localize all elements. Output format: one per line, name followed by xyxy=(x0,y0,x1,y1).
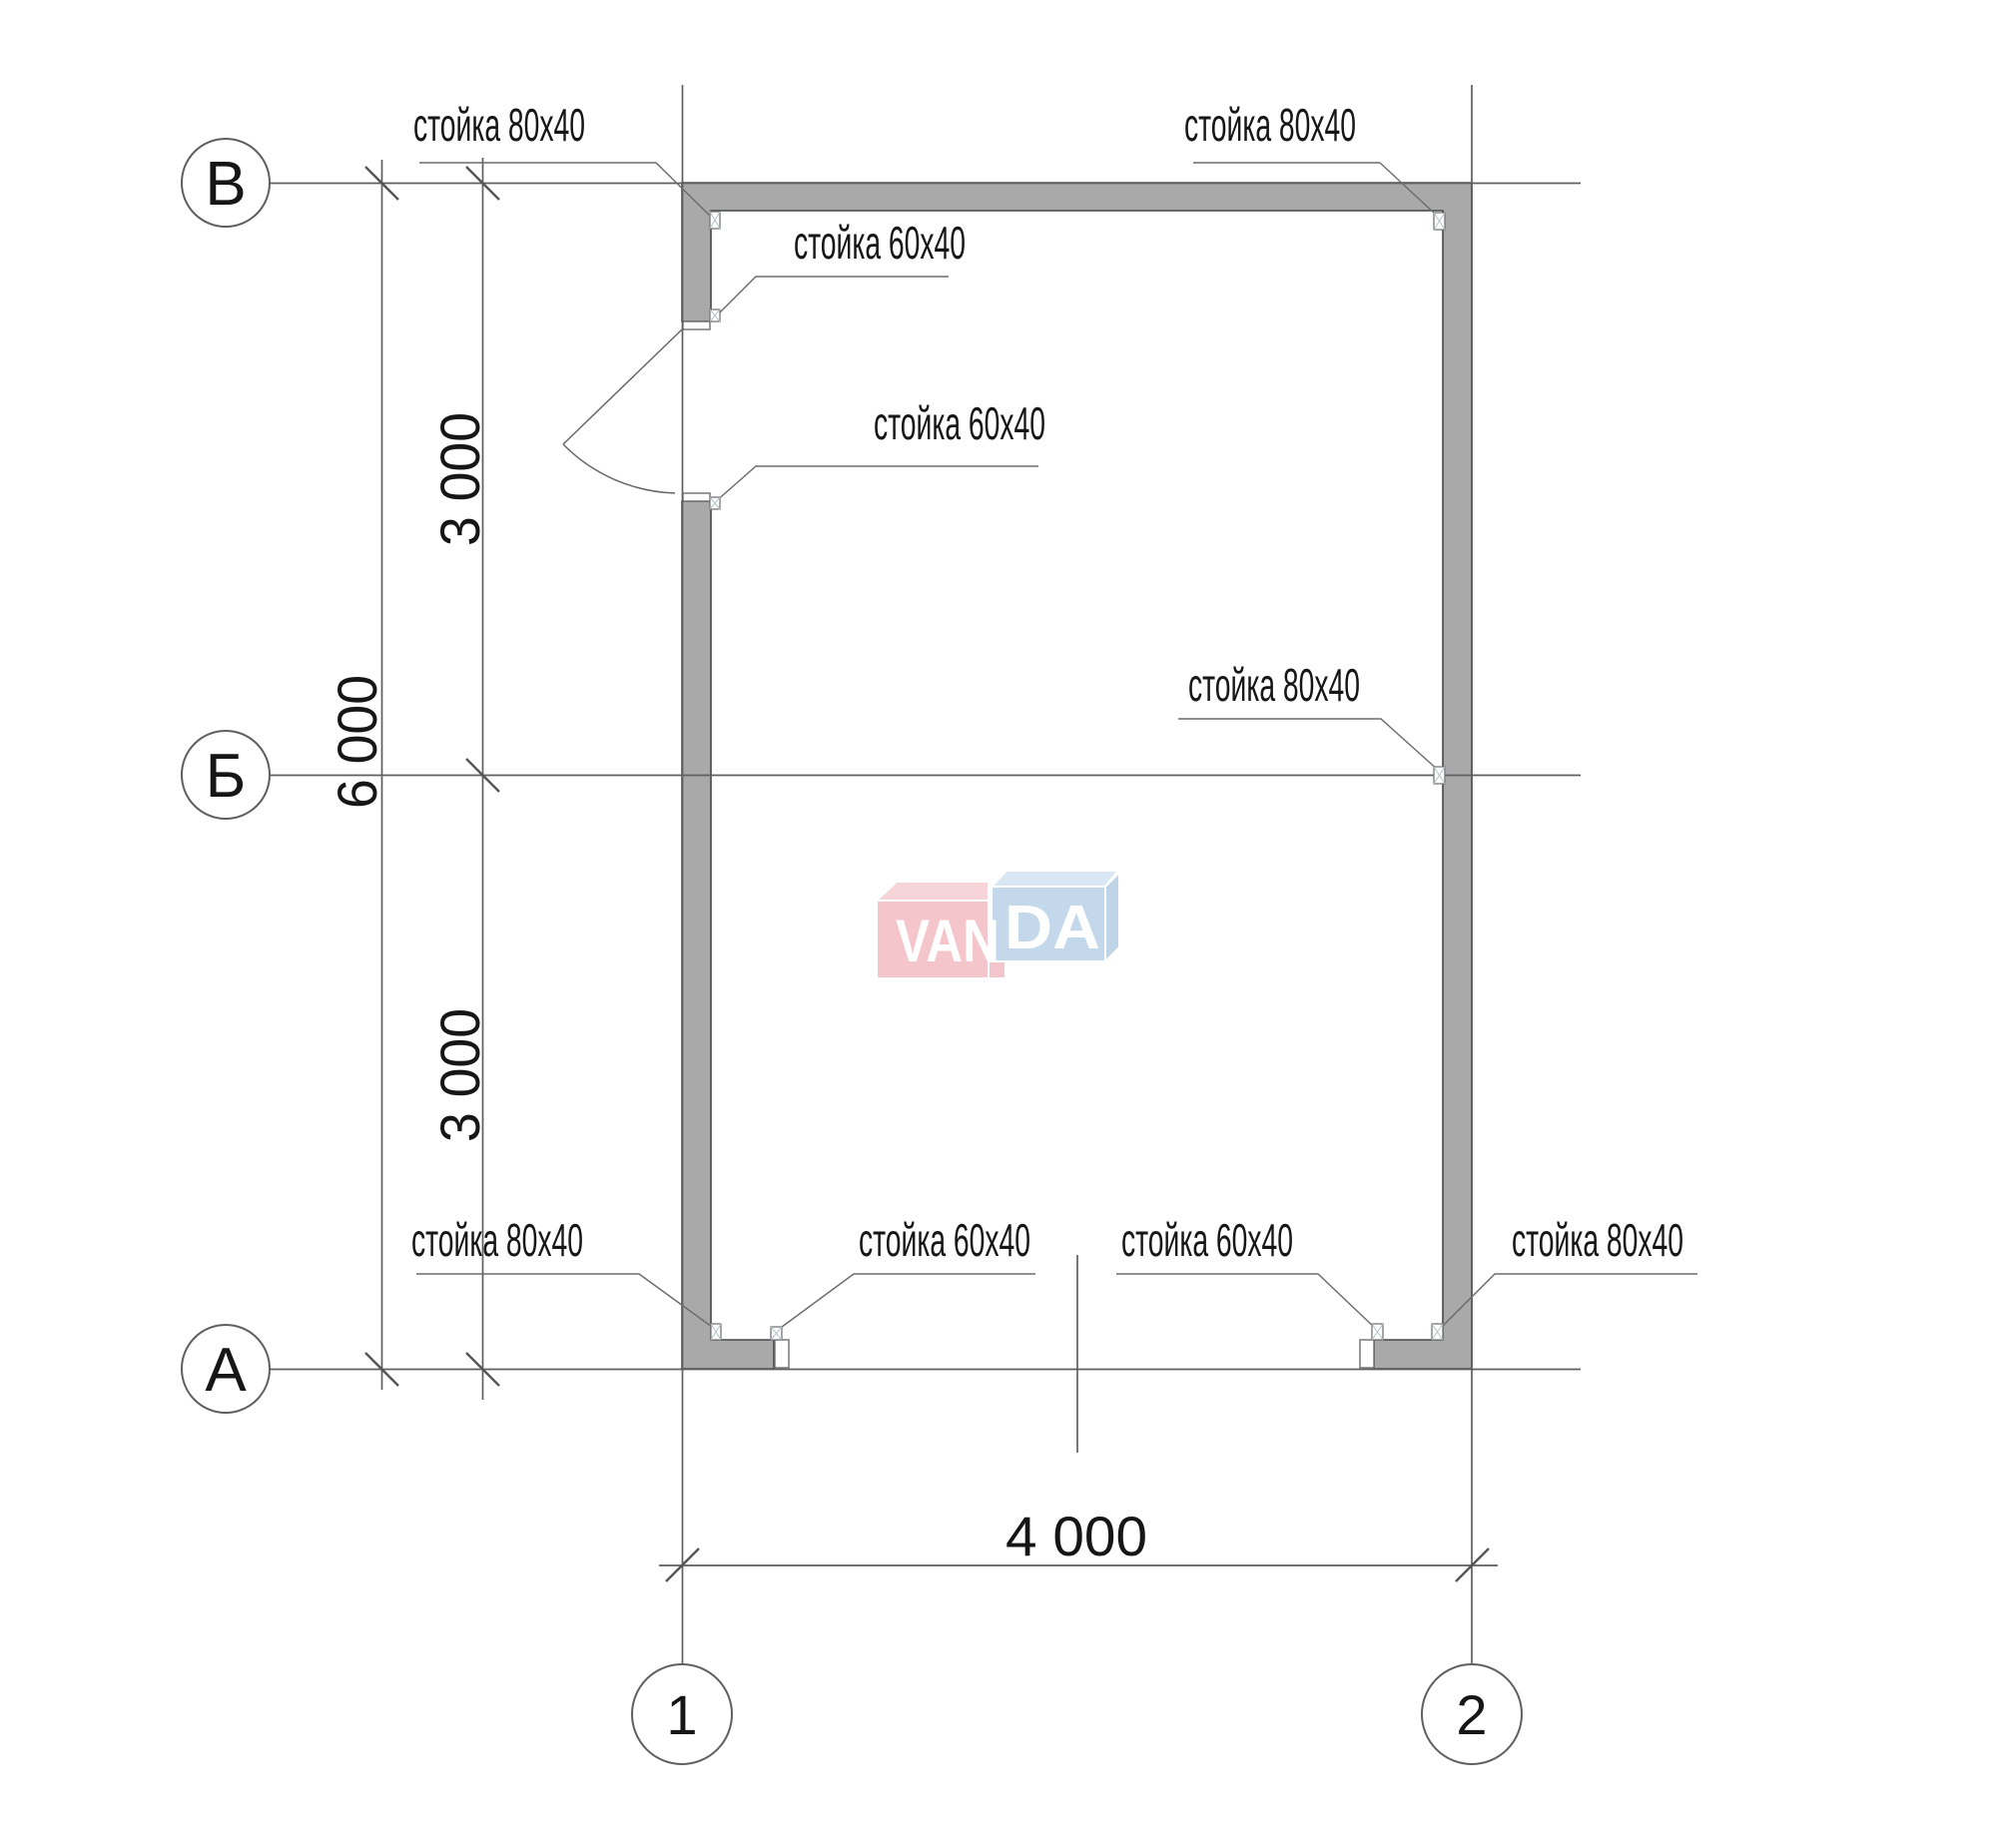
post-marker xyxy=(771,1327,782,1340)
post-marker xyxy=(711,1324,721,1340)
leader xyxy=(715,466,1038,502)
leader xyxy=(778,1274,1035,1330)
leader xyxy=(416,1274,712,1327)
post-marker xyxy=(710,309,720,321)
axis-label-row-b: Б xyxy=(206,742,247,811)
wall-cap xyxy=(775,1340,789,1368)
leader xyxy=(1116,1274,1377,1330)
callout-post-60x40-upper: стойка 60x40 xyxy=(794,217,966,269)
wall-cap xyxy=(683,493,710,501)
leader xyxy=(1441,1274,1697,1328)
wall-cap xyxy=(1360,1340,1374,1368)
post-marker xyxy=(1434,213,1445,230)
watermark-text-da: DA xyxy=(1004,894,1100,962)
wall-end-caps xyxy=(683,321,1374,1368)
callout-post-80x40-bottom-left: стойка 80x40 xyxy=(411,1214,583,1266)
post-marker xyxy=(1432,1324,1443,1340)
dim-text-6000: 6 000 xyxy=(326,675,388,809)
callout-texts: стойка 80x40 стойка 80x40 стойка 60x40 с… xyxy=(411,99,1683,1266)
callout-post-60x40-bottom-left: стойка 60x40 xyxy=(859,1214,1030,1266)
post-marker xyxy=(710,497,720,509)
dim-text-3000-lower: 3 000 xyxy=(428,1008,491,1142)
door-symbol xyxy=(563,329,682,493)
callout-post-60x40-door: стойка 60x40 xyxy=(874,397,1045,449)
leader-lines xyxy=(416,163,1697,1330)
leader xyxy=(718,277,949,314)
callout-post-80x40-top-right: стойка 80x40 xyxy=(1184,99,1356,151)
dim-text-3000-upper: 3 000 xyxy=(428,412,491,546)
dim-text-4000: 4 000 xyxy=(1005,1505,1147,1567)
door-swing-arc xyxy=(563,444,675,493)
watermark-text-van: VAN xyxy=(896,908,999,974)
callout-post-80x40-bottom-right: стойка 80x40 xyxy=(1512,1214,1683,1266)
leader xyxy=(419,163,715,221)
watermark-blue-top-flap xyxy=(992,871,1118,887)
callout-post-60x40-bottom-right: стойка 60x40 xyxy=(1121,1214,1293,1266)
axis-label-row-a: А xyxy=(205,1336,247,1405)
post-marker xyxy=(710,212,720,229)
wall-cap xyxy=(683,321,710,329)
post-marker xyxy=(1372,1324,1383,1340)
floor-plan-canvas: VAN DA xyxy=(0,0,1997,1848)
watermark-logo: VAN DA xyxy=(877,871,1119,978)
dimension-lines xyxy=(382,158,1499,1565)
axis-label-col-2: 2 xyxy=(1456,1683,1487,1746)
grid-lines xyxy=(270,85,1581,1664)
axis-label-row-v: В xyxy=(205,150,246,219)
post-marker xyxy=(1434,767,1445,784)
door-leaf xyxy=(563,329,682,444)
wall-left-bottom-assembly xyxy=(682,501,774,1369)
axis-label-col-1: 1 xyxy=(666,1683,697,1746)
floor-plan-drawing: VAN DA xyxy=(0,0,1997,1848)
watermark-pink-top-flap xyxy=(877,882,989,901)
leader xyxy=(1178,719,1439,771)
callout-post-80x40-top-left: стойка 80x40 xyxy=(413,99,585,151)
callout-post-80x40-mid-right: стойка 80x40 xyxy=(1188,659,1360,711)
dimension-texts: 6 000 3 000 3 000 4 000 xyxy=(326,412,1147,1567)
watermark-blue-side-flap xyxy=(1105,873,1119,961)
